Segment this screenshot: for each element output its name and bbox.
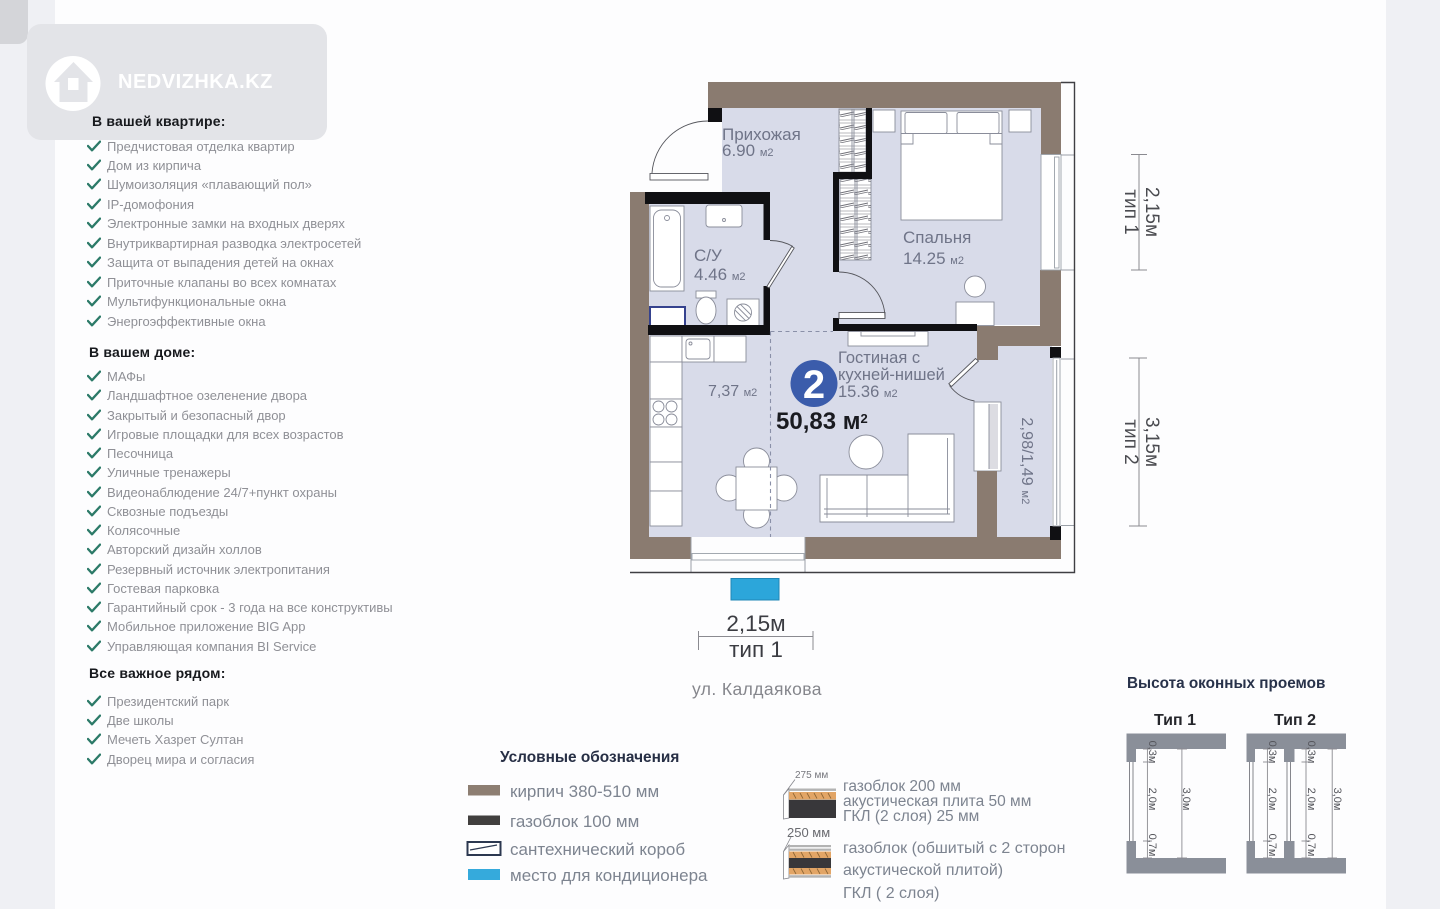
svg-text:2: 2 (803, 363, 825, 407)
